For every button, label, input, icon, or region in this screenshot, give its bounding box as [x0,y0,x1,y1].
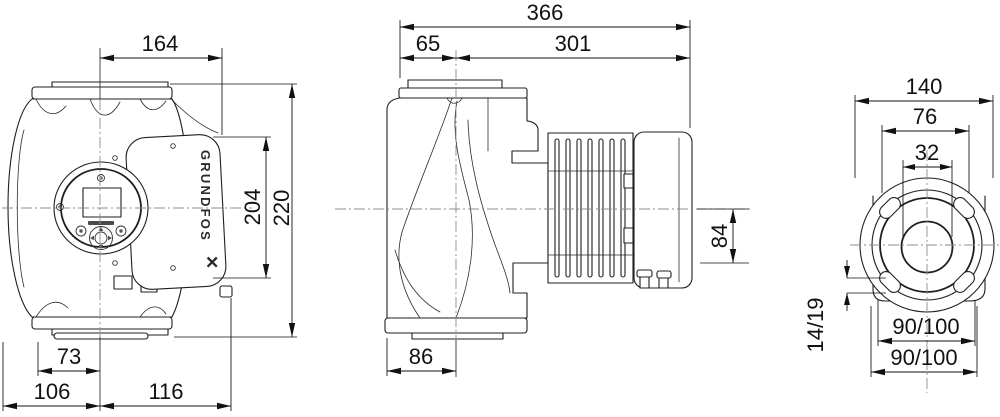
dim-total-length-label: 366 [527,0,564,25]
terminal-clip [624,174,633,188]
brand-logotype: GRUNDFOS [198,150,213,242]
dimensional-drawing: GRUNDFOS ✕ 164 220 204 73 [0,0,1000,417]
dim-bolt-v-label: 90/100 [890,345,957,370]
dim-106-label: 106 [34,379,71,404]
top-flange-side [408,80,502,88]
dim-32-label: 32 [915,140,939,165]
dim-76-label: 76 [913,104,937,129]
bottom-flange-front [32,317,172,329]
dim-73-label: 73 [57,344,81,369]
control-housing [634,132,692,288]
dim-84-label: 84 [707,224,732,248]
dim-bolt-h-label: 90/100 [892,314,959,339]
display-label-bar [88,221,114,225]
dim-86-label: 86 [409,344,433,369]
dim-box-height-label: 204 [240,189,265,226]
dim-total-height-label: 220 [269,190,294,227]
terminal-clip [624,228,633,243]
dim-65-label: 65 [416,31,440,56]
dim-slot-label: 14/19 [803,297,828,352]
end-view: 140 76 32 14/19 90/100 90 [803,74,999,393]
box-tab [114,276,132,289]
dim-140-label: 140 [906,74,943,99]
side-view: 366 65 301 84 86 [335,0,750,377]
dim-port-span-label: 164 [142,31,179,56]
dim-301-label: 301 [555,31,592,56]
motor-fins [548,133,633,283]
front-view: GRUNDFOS ✕ 164 220 204 73 [2,31,297,411]
grundfos-logo-icon: ✕ [202,255,221,269]
dim-116-label: 116 [148,379,183,404]
cable-gland-front [220,286,232,297]
